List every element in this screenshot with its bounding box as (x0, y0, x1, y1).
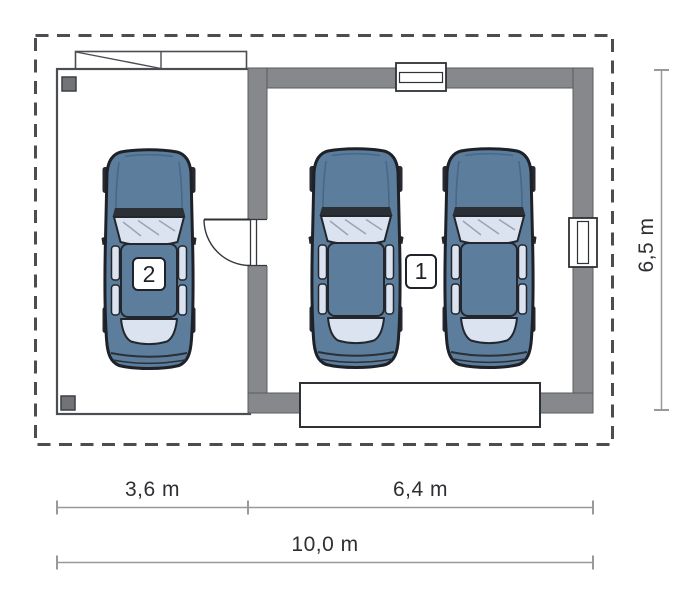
room-label-garage: 1 (405, 254, 437, 289)
floor-plan-drawing (0, 0, 700, 595)
roof-overhang (76, 52, 247, 70)
window-glazing (400, 73, 443, 83)
door-opening (246, 219, 271, 266)
car-garage-right (442, 149, 537, 368)
garage-walls (248, 68, 593, 413)
window-top (396, 63, 446, 91)
garage-door (300, 383, 540, 427)
dimension-garage-width: 6,4 m (248, 478, 593, 502)
column-post (61, 396, 75, 410)
floor-plan: 3,6 m 6,4 m 10,0 m 6,5 m 1 2 (0, 0, 700, 595)
window-right (569, 218, 597, 267)
column-post (62, 77, 76, 91)
window-glazing (578, 222, 589, 264)
room-label-carport: 2 (132, 257, 166, 291)
dimension-carport-width: 3,6 m (57, 478, 248, 502)
car-garage-left (309, 149, 404, 368)
dimension-building-depth: 6,5 m (634, 200, 660, 290)
dimension-total-width: 10,0 m (57, 533, 593, 557)
